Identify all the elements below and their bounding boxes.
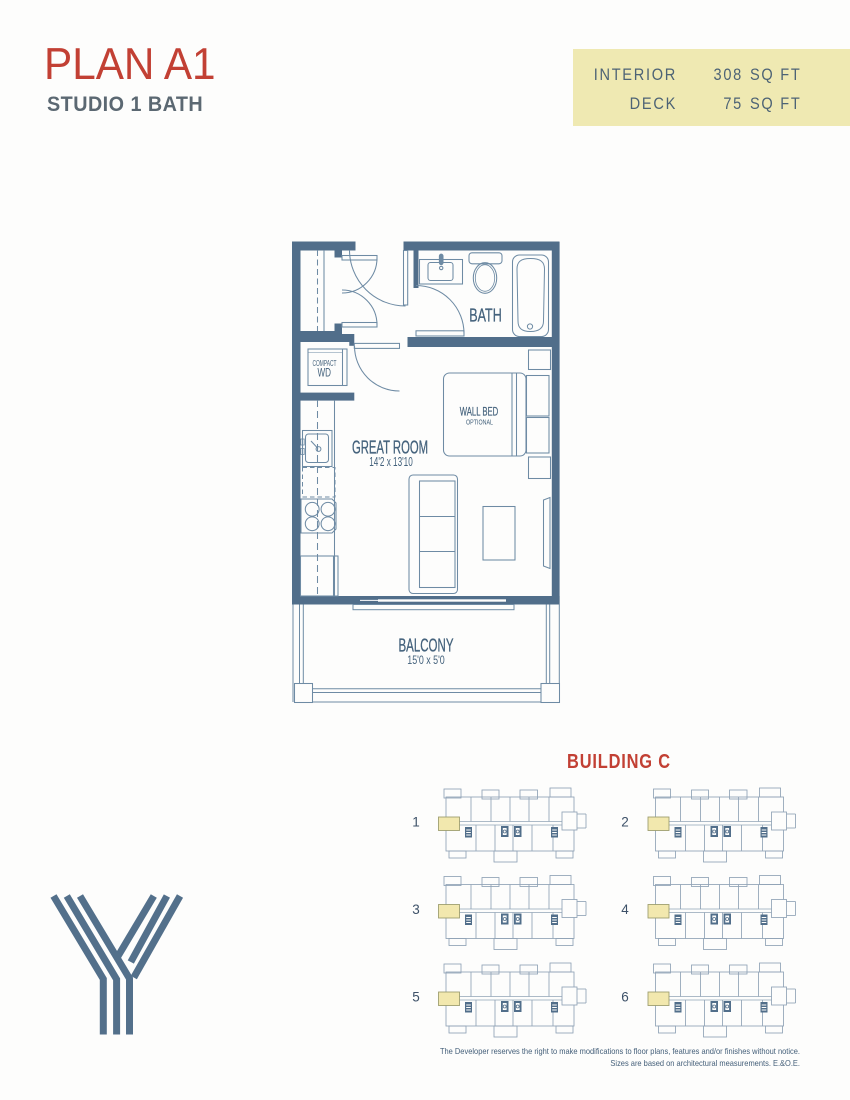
svg-text:1: 1 <box>412 815 420 830</box>
svg-text:6: 6 <box>621 990 629 1005</box>
svg-text:WD: WD <box>317 368 331 380</box>
svg-text:5: 5 <box>412 990 420 1005</box>
svg-text:15'0 x 5'0: 15'0 x 5'0 <box>407 653 445 667</box>
svg-text:OPTIONAL: OPTIONAL <box>466 418 493 427</box>
svg-text:BATH: BATH <box>469 306 502 326</box>
svg-text:3: 3 <box>412 902 420 917</box>
svg-text:14'2 x 13'10: 14'2 x 13'10 <box>369 455 413 469</box>
svg-text:2: 2 <box>621 815 629 830</box>
svg-text:4: 4 <box>621 902 629 917</box>
